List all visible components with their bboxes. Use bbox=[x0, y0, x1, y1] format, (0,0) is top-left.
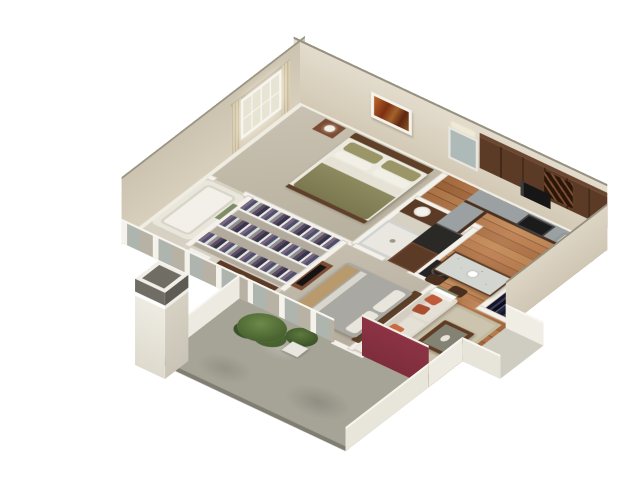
wall-bath2-north bbox=[413, 195, 484, 230]
kitchen-pantry-cabinet bbox=[387, 242, 438, 274]
closet-rack-row-1 bbox=[240, 199, 342, 251]
kitchen-island-base bbox=[432, 251, 514, 296]
bed1-pillow-white-right bbox=[371, 168, 411, 189]
kitchen-island-bowl bbox=[466, 270, 480, 278]
bed1-duvet-olive bbox=[292, 163, 396, 221]
wall-bath2-south-a bbox=[351, 243, 387, 262]
kitchen-washer-door bbox=[428, 265, 450, 279]
bathroom-2-floor bbox=[353, 197, 478, 274]
bed1-lamp bbox=[322, 124, 337, 133]
bar-stool-1 bbox=[423, 273, 446, 287]
bed1-sheet-fold bbox=[322, 156, 405, 197]
bed1-foot-rail bbox=[285, 184, 367, 224]
curtain-right bbox=[232, 98, 241, 154]
curtain-left bbox=[282, 60, 291, 116]
column-side-face bbox=[165, 275, 188, 379]
wall-bath2-east bbox=[411, 225, 481, 277]
coffee-table-decor bbox=[438, 334, 452, 343]
bar-stool-2 bbox=[446, 285, 469, 299]
bath2-vanity bbox=[399, 199, 450, 228]
sofa-pillow-rust-1 bbox=[423, 294, 443, 306]
bed1-pillow-olive-right bbox=[380, 159, 423, 182]
floorplan-scene bbox=[0, 0, 640, 480]
bed2-tv bbox=[296, 264, 327, 286]
bath2-toilet-bowl bbox=[437, 224, 464, 240]
kitchen-fridge bbox=[412, 223, 463, 255]
wall-art-canvas bbox=[374, 96, 409, 131]
sofa-cushion-1 bbox=[412, 294, 455, 322]
bath1-towels-green bbox=[215, 203, 238, 219]
bath2-shower bbox=[357, 220, 427, 262]
sofa-pillow-rust-2 bbox=[411, 303, 431, 315]
patio-planter-box bbox=[282, 341, 309, 357]
wall-bedroom1-south-b bbox=[241, 191, 356, 247]
wall-bedroom1-east bbox=[350, 172, 449, 246]
column-front-face bbox=[135, 279, 165, 379]
bath2-toilet-tank bbox=[447, 218, 472, 232]
kitchen-counter-return bbox=[437, 202, 488, 234]
wall-art-frame bbox=[371, 91, 412, 136]
wall-closet-east bbox=[278, 239, 348, 291]
bath2-shower-drain bbox=[388, 238, 396, 243]
closet-rail-2 bbox=[217, 224, 309, 268]
bed1-pillow-white-left bbox=[333, 150, 373, 171]
wall-tub-east bbox=[184, 195, 254, 247]
bath2-sink bbox=[410, 205, 434, 219]
closet-rack-row-2 bbox=[219, 215, 321, 267]
wall-bath2-south-b bbox=[406, 269, 442, 287]
kitchen-island-top bbox=[435, 253, 511, 295]
patio-edge bbox=[157, 359, 350, 451]
linen-shelf bbox=[429, 286, 458, 302]
kitchen-washer bbox=[418, 260, 459, 285]
bed2-pillow-1 bbox=[371, 289, 407, 313]
bed1-pillow-olive-left bbox=[342, 141, 385, 164]
apartment-plan bbox=[35, 105, 615, 457]
bath2-towel-shelf bbox=[399, 250, 434, 271]
bed2-dresser bbox=[290, 261, 333, 291]
closet-rail-1 bbox=[238, 208, 330, 252]
